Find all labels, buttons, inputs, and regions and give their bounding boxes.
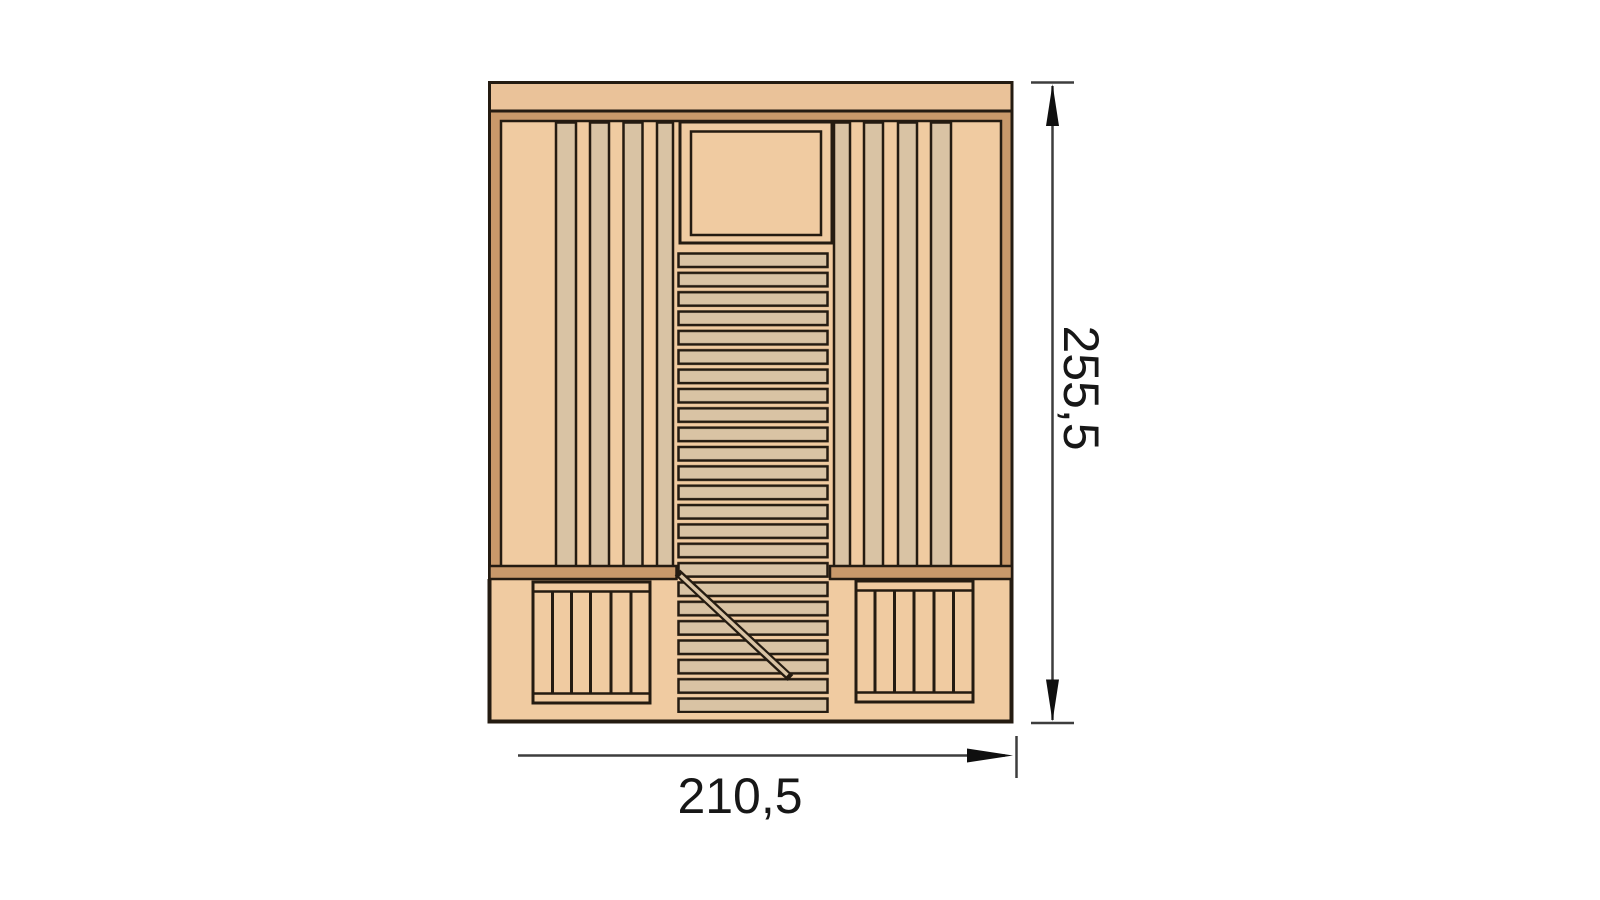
arrow-down-icon xyxy=(1046,680,1059,722)
bench-board xyxy=(590,123,609,567)
bench-board xyxy=(657,123,673,567)
arrow-right-icon xyxy=(967,749,1013,763)
bench-board xyxy=(624,123,643,567)
height-dimension-label: 255,5 xyxy=(1053,325,1109,450)
porch-grate-right xyxy=(856,581,973,702)
height-dimension: 255,5 xyxy=(1031,83,1109,724)
top-wall-band xyxy=(490,83,1013,112)
porch-wall-band-left xyxy=(490,566,677,579)
door-frame-inner xyxy=(691,132,821,236)
bench-board xyxy=(834,123,850,567)
sauna-floor-plan-svg: 255,5 210,5 xyxy=(0,0,1600,900)
diagram-canvas: 255,5 210,5 xyxy=(0,0,1600,900)
bench-board xyxy=(898,123,917,567)
width-dimension-label: 210,5 xyxy=(677,768,802,824)
width-dimension: 210,5 xyxy=(518,736,1017,824)
bench-board xyxy=(864,123,883,567)
porch-wall-band-right xyxy=(830,566,1012,579)
arrow-up-icon xyxy=(1046,84,1059,126)
bench-board xyxy=(931,123,951,567)
porch-grate-left xyxy=(533,582,650,703)
bench-board xyxy=(556,123,576,567)
